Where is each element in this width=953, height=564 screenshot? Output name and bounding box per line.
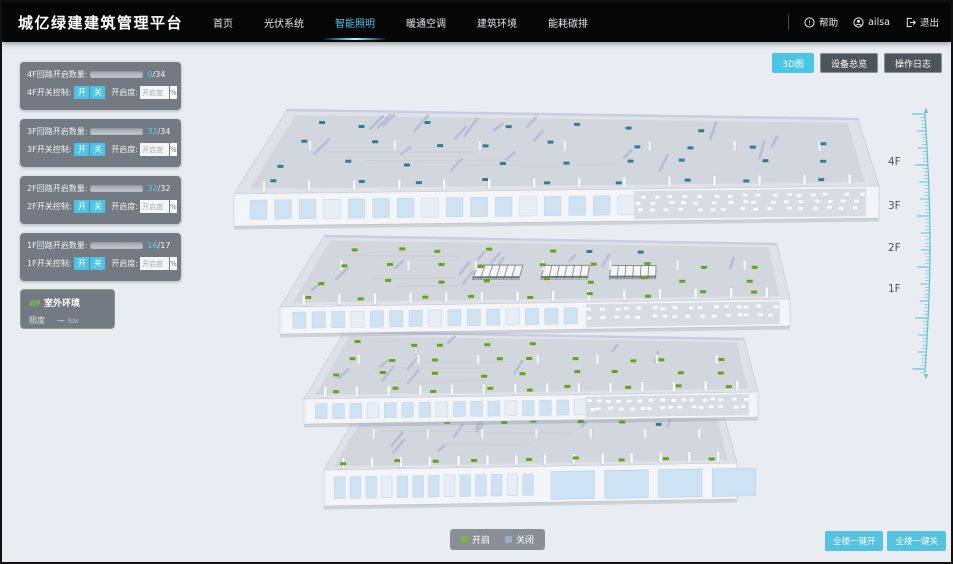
- circuit-progress-bar: [90, 128, 143, 135]
- view-toolbar: 3D图 设备总览 操作日志: [772, 53, 942, 73]
- legend-on: 开启: [461, 533, 490, 546]
- illuminance-unit: lux: [68, 317, 79, 325]
- illuminance-label: 照度: [29, 315, 45, 326]
- circuit-progress-bar: [90, 185, 143, 192]
- outdoor-env-panel: 室外环境 照度 — lux: [20, 289, 115, 329]
- circuit-progress-bar: [90, 242, 143, 249]
- openness-label: 开启度:: [111, 87, 138, 98]
- app-title: 城亿绿建建筑管理平台: [18, 12, 183, 33]
- view-3d-button[interactable]: 3D图: [772, 53, 814, 73]
- help-label: 帮助: [819, 15, 838, 29]
- user-account[interactable]: ailsa: [853, 17, 890, 28]
- switch-off-button[interactable]: 关: [90, 86, 105, 99]
- floor-panel-2f: 2F回路开启数量: 32/32 2F开关控制: 开 关 开启度: %: [20, 176, 181, 224]
- logout-label: 退出: [920, 15, 939, 29]
- circuit-count-value: 32/34: [147, 127, 170, 136]
- circuit-count-value: 32/32: [147, 184, 170, 193]
- outdoor-env-title: 室外环境: [44, 296, 80, 309]
- user-area: ! 帮助 ailsa 退出: [788, 14, 939, 30]
- axis-label-2f[interactable]: 2F: [888, 242, 901, 254]
- axis-label-3f[interactable]: 3F: [888, 200, 901, 212]
- openness-input[interactable]: [140, 200, 169, 213]
- legend-on-swatch: [461, 536, 468, 543]
- floor-panel-1f: 1F回路开启数量: 16/17 1F开关控制: 开 关 开启度: %: [20, 233, 181, 281]
- switch-off-button[interactable]: 关: [90, 257, 105, 270]
- nav-item-home[interactable]: 首页: [211, 11, 235, 34]
- illuminance-value: —: [57, 316, 65, 325]
- switch-on-button[interactable]: 开: [74, 86, 89, 99]
- outdoor-env-icon: [29, 298, 40, 308]
- percent-button[interactable]: %: [170, 143, 177, 156]
- switch-control-label: 2F开关控制:: [27, 201, 71, 212]
- logout-icon: [905, 17, 916, 28]
- nav-item-energy-carbon[interactable]: 能耗碳排: [546, 11, 590, 34]
- circuit-count-label: 4F回路开启数量:: [27, 69, 87, 80]
- nav-item-hvac[interactable]: 暖通空调: [404, 11, 448, 34]
- switch-control-label: 1F开关控制:: [27, 258, 71, 269]
- percent-button[interactable]: %: [170, 200, 177, 213]
- floor-panel-3f: 3F回路开启数量: 32/34 3F开关控制: 开 关 开启度: %: [20, 119, 181, 167]
- switch-on-button[interactable]: 开: [74, 143, 89, 156]
- floor-slab-2f[interactable]: [304, 332, 758, 428]
- divider: [788, 14, 789, 30]
- circuit-count-label: 3F回路开启数量:: [27, 126, 87, 137]
- top-bar: 城亿绿建建筑管理平台 首页 光伏系统 智能照明 暖通空调 建筑环境 能耗碳排 !…: [2, 2, 951, 42]
- switch-on-button[interactable]: 开: [74, 257, 89, 270]
- openness-input[interactable]: [140, 86, 169, 99]
- main-nav: 首页 光伏系统 智能照明 暖通空调 建筑环境 能耗碳排: [211, 11, 590, 34]
- openness-label: 开启度:: [111, 144, 138, 155]
- username: ailsa: [868, 17, 890, 28]
- circuit-count-value: 0/34: [147, 70, 165, 79]
- circuit-count-label: 2F回路开启数量:: [27, 183, 87, 194]
- circuit-count-value: 16/17: [147, 241, 170, 250]
- circuit-count-label: 1F回路开启数量:: [27, 240, 87, 251]
- axis-label-1f[interactable]: 1F: [888, 283, 901, 295]
- circuit-progress-bar: [90, 71, 143, 78]
- axis-label-4f[interactable]: 4F: [888, 156, 901, 168]
- bulk-controls: 全楼一键开 全楼一键关: [825, 531, 946, 551]
- logout-link[interactable]: 退出: [905, 15, 939, 29]
- floor-slab-3f[interactable]: [280, 236, 790, 338]
- app-window: 城亿绿建建筑管理平台 首页 光伏系统 智能照明 暖通空调 建筑环境 能耗碳排 !…: [0, 0, 953, 564]
- switch-off-button[interactable]: 关: [90, 143, 105, 156]
- svg-text:!: !: [808, 18, 811, 26]
- switch-control-label: 4F开关控制:: [27, 87, 71, 98]
- all-off-button[interactable]: 全楼一键关: [887, 531, 946, 551]
- legend-off-swatch: [505, 536, 512, 543]
- floor-ruler[interactable]: [912, 108, 930, 379]
- help-icon: !: [804, 17, 815, 28]
- floor-slab-4f[interactable]: [234, 110, 879, 230]
- switch-control-label: 3F开关控制:: [27, 144, 71, 155]
- nav-item-smart-lighting[interactable]: 智能照明: [333, 11, 377, 34]
- legend-on-label: 开启: [472, 533, 490, 546]
- operation-log-button[interactable]: 操作日志: [884, 53, 942, 73]
- lighting-legend: 开启 关闭: [450, 529, 545, 550]
- nav-item-pv-system[interactable]: 光伏系统: [262, 11, 306, 34]
- all-on-button[interactable]: 全楼一键开: [825, 531, 884, 551]
- switch-off-button[interactable]: 关: [90, 200, 105, 213]
- help-link[interactable]: ! 帮助: [804, 15, 838, 29]
- nav-item-building-env[interactable]: 建筑环境: [475, 11, 519, 34]
- switch-on-button[interactable]: 开: [74, 200, 89, 213]
- openness-label: 开启度:: [111, 258, 138, 269]
- legend-off-label: 关闭: [516, 533, 534, 546]
- openness-input[interactable]: [140, 143, 169, 156]
- openness-input[interactable]: [140, 257, 169, 270]
- device-overview-button[interactable]: 设备总览: [820, 53, 878, 73]
- percent-button[interactable]: %: [170, 86, 177, 99]
- legend-off: 关闭: [505, 533, 534, 546]
- floor-panel-4f: 4F回路开启数量: 0/34 4F开关控制: 开 关 开启度: %: [20, 62, 181, 110]
- openness-label: 开启度:: [111, 201, 138, 212]
- percent-button[interactable]: %: [170, 257, 177, 270]
- user-icon: [853, 17, 864, 28]
